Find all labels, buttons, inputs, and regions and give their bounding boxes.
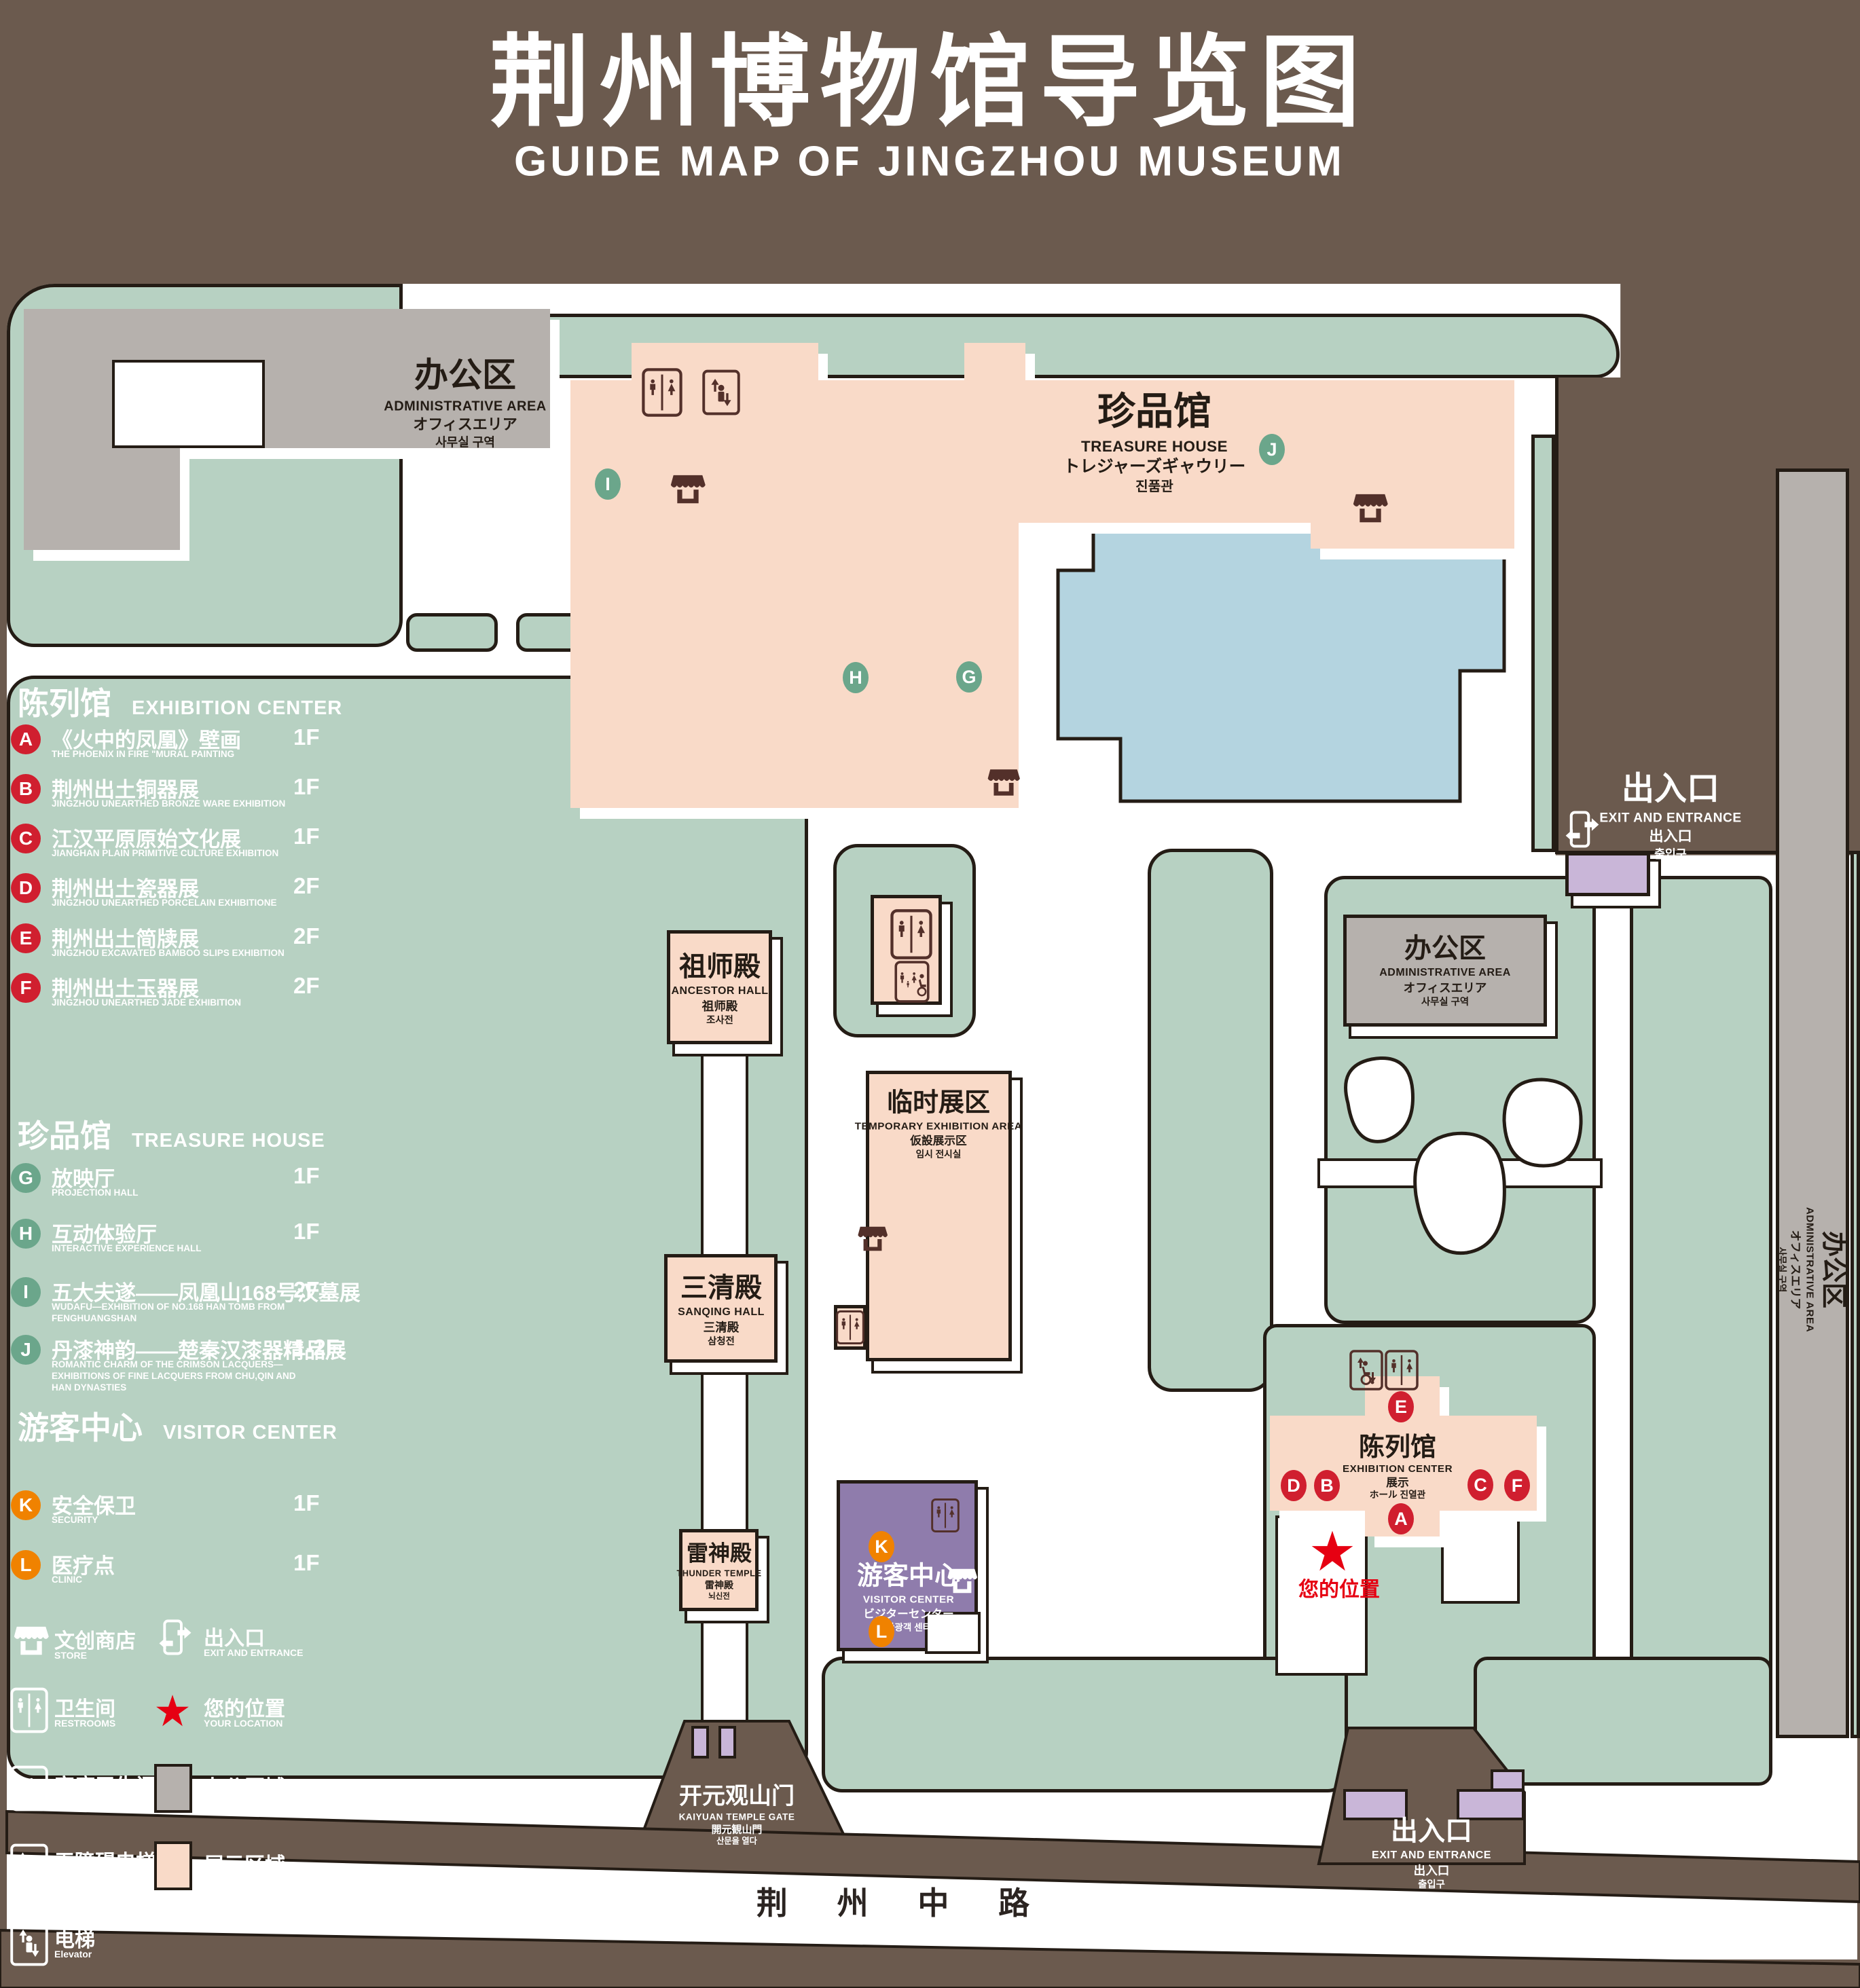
- map-marker-j: J: [1259, 434, 1285, 465]
- restrooms-icon: [931, 1497, 960, 1534]
- green-zone-south-center: [822, 1657, 1348, 1792]
- office-area-swatch: [154, 1764, 192, 1813]
- treasure-house-label: 珍品馆 TREASURE HOUSE トレジャーズギャウリー 진품관: [1063, 387, 1245, 496]
- exit-south-label: 出入口 EXIT AND ENTRANCE 出入口 출입구: [1372, 1814, 1491, 1891]
- gate-pillar-east: [718, 1726, 736, 1759]
- legend-symbol-sublabel: DISPLAY AREA: [204, 1874, 273, 1885]
- map-marker-b: B: [1314, 1470, 1340, 1501]
- ancestor-hall-label: 祖师殿 ANCESTOR HALL 祖师殿 조사전: [671, 949, 768, 1027]
- green-zone-center-column: [1148, 849, 1273, 1392]
- page-subtitle: GUIDE MAP OF JINGZHOU MUSEUM: [514, 138, 1345, 186]
- map-marker-k: K: [869, 1531, 894, 1562]
- legend-symbol-sublabel: ACCESSIBLE ELEVATOR: [54, 1871, 168, 1882]
- restrooms-icon: [10, 1684, 48, 1737]
- map-marker-l: L: [869, 1616, 894, 1647]
- restrooms-icon: [890, 908, 932, 960]
- store-icon: [946, 1564, 979, 1597]
- green-zone-east-column: [1630, 876, 1772, 1738]
- map-marker-e: E: [1388, 1391, 1414, 1422]
- page-title: 荆州博物馆导览图: [490, 1, 1370, 147]
- legend-symbol-sublabel: STORE: [54, 1650, 87, 1661]
- legend-section-exhibition-center: 陈列馆EXHIBITION CENTER: [18, 679, 342, 724]
- green-block-plaza-a: [406, 613, 498, 652]
- thunder-temple-label: 雷神殿 THUNDER TEMPLE 雷神殿 뇌신전: [676, 1539, 761, 1601]
- south-exit-building-east-notch: [1491, 1769, 1525, 1791]
- store-icon: [986, 765, 1021, 800]
- admin-strip-label: 办公区 ADMINISTRATIVE AREA オフィスエリア 사무실 구역: [1776, 1207, 1850, 1332]
- accessible-elevator-icon: [1349, 1349, 1383, 1391]
- path-garden-separator: [1317, 1158, 1603, 1188]
- legend-symbol-sublabel: Elevator: [54, 1949, 92, 1959]
- store-icon: [1351, 489, 1389, 527]
- legend-symbol-sublabel: EXIT AND ENTRANCE: [204, 1647, 304, 1658]
- path-temple-corridor: [701, 1044, 748, 1779]
- legend-section-visitor-center: 游客中心VISITOR CENTER: [18, 1403, 338, 1448]
- exit-icon: [156, 1614, 194, 1661]
- restrooms-icon: [1385, 1349, 1419, 1391]
- display-area-swatch: [154, 1841, 192, 1890]
- legend-symbol-sublabel: RESTROOMS: [54, 1718, 115, 1729]
- map-marker-a: A: [1388, 1503, 1414, 1534]
- elevator-icon: [702, 368, 740, 417]
- legend-symbol-sublabel: OFFICE AREA: [204, 1797, 268, 1807]
- road-label: 荆 州 中 路: [756, 1879, 1050, 1923]
- map-marker-f: F: [1504, 1470, 1530, 1501]
- family-restrooms-icon: [10, 1762, 48, 1815]
- gate-pillar-west: [691, 1726, 709, 1759]
- store-icon: [856, 1222, 889, 1255]
- admin-east-label: 办公区 ADMINISTRATIVE AREA オフィスエリア 사무실 구역: [1379, 931, 1511, 1008]
- temporary-exhibition-label: 临时展区 TEMPORARY EXHIBITION AREA 仮設展示区 임시 …: [855, 1087, 1023, 1161]
- exit-icon: [1563, 810, 1602, 849]
- your-location-star-icon: [1310, 1529, 1355, 1574]
- exhibition-center-label: 陈列馆 EXHIBITION CENTER 展示 ホール 진열관: [1343, 1432, 1453, 1501]
- map-marker-g: G: [956, 661, 982, 693]
- elevator-icon: [10, 1917, 48, 1970]
- courtyard-exhibition-east: [1441, 1515, 1520, 1604]
- sanqing-hall-label: 三清殿 SANQING HALL 三清殿 삼청전: [678, 1270, 765, 1348]
- admin-strip-building: [1776, 468, 1849, 1738]
- store-icon: [12, 1620, 50, 1661]
- exit-northeast-label: 出入口 EXIT AND ENTRANCE 出入口 출입구: [1599, 768, 1741, 861]
- admin-west-courtyard: [112, 360, 265, 448]
- restrooms-icon: [836, 1308, 864, 1346]
- green-strip-entrance: [1531, 435, 1555, 852]
- guide-map-page: 荆州博物馆导览图 GUIDE MAP OF JINGZHOU MUSEUM 办公…: [0, 0, 1860, 1988]
- legend-symbol-sublabel: YOUR LOCATION: [204, 1718, 282, 1729]
- your-location-label: 您的位置: [1298, 1572, 1380, 1602]
- map-marker-h: H: [843, 662, 869, 693]
- family-restrooms-icon: [894, 961, 930, 1003]
- accessible-elevator-icon: [10, 1840, 48, 1893]
- restrooms-icon: [642, 367, 682, 418]
- kaiyuan-gate-label: 开元观山门 KAIYUAN TEMPLE GATE 開元観山門 산문을 열다: [679, 1781, 795, 1847]
- admin-west-label: 办公区 ADMINISTRATIVE AREA オフィスエリア 사무실 구역: [384, 354, 547, 451]
- map-marker-i: I: [595, 468, 621, 500]
- legend-symbol-sublabel: FAMILY RESTROOMS: [54, 1795, 152, 1806]
- legend-section-treasure-house: 珍品馆TREASURE HOUSE: [18, 1111, 325, 1156]
- your-location-star-icon: [155, 1693, 190, 1729]
- green-zone-south-east: [1474, 1657, 1772, 1786]
- map-marker-d: D: [1281, 1470, 1307, 1501]
- map-marker-c: C: [1467, 1469, 1493, 1501]
- store-icon: [669, 470, 707, 508]
